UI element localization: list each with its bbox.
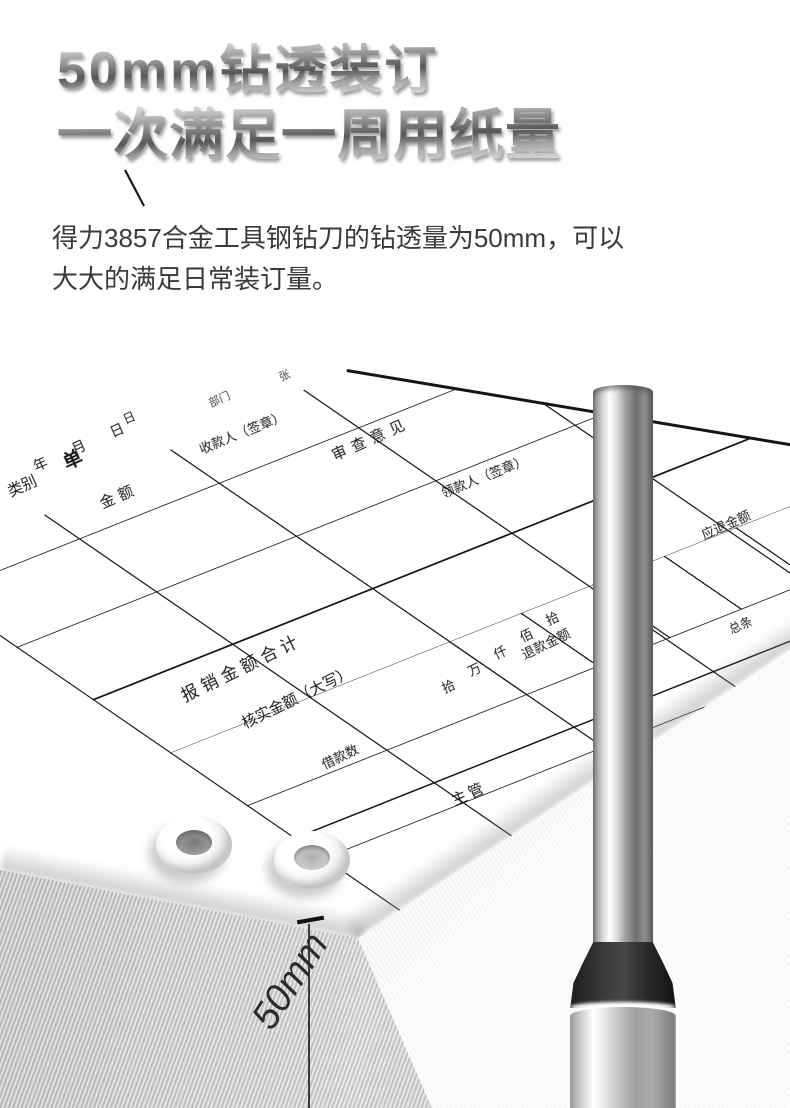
description-text: 得力3857合金工具钢钻刀的钻透量为50mm，可以 大大的满足日常装订量。 [52, 218, 624, 300]
description-line2: 大大的满足日常装订量。 [52, 259, 624, 300]
drill-bit-shank [570, 1007, 676, 1108]
binding-grommet [274, 831, 350, 889]
form-grid-bold-line [92, 292, 790, 700]
description-line1: 得力3857合金工具钢钻刀的钻透量为50mm，可以 [52, 218, 624, 259]
form-dept-label: 部门 [206, 387, 233, 411]
binding-grommet [156, 816, 232, 874]
form-sheet-label: 张 [276, 366, 293, 385]
grommet-hole [294, 845, 330, 870]
backslash-decoration [118, 166, 152, 212]
product-detail-image: 50mm钻透装订 一次满足一周用纸量 得力3857合金工具钢钻刀的钻透量为50m… [0, 0, 790, 1108]
grommet-hole [176, 830, 212, 855]
drill-bit-rod [593, 385, 653, 945]
headline-line2: 一次满足一周用纸量 [57, 90, 561, 170]
form-category-label: 类别 [4, 470, 40, 501]
drill-bit-rim-light [676, 1007, 683, 1108]
